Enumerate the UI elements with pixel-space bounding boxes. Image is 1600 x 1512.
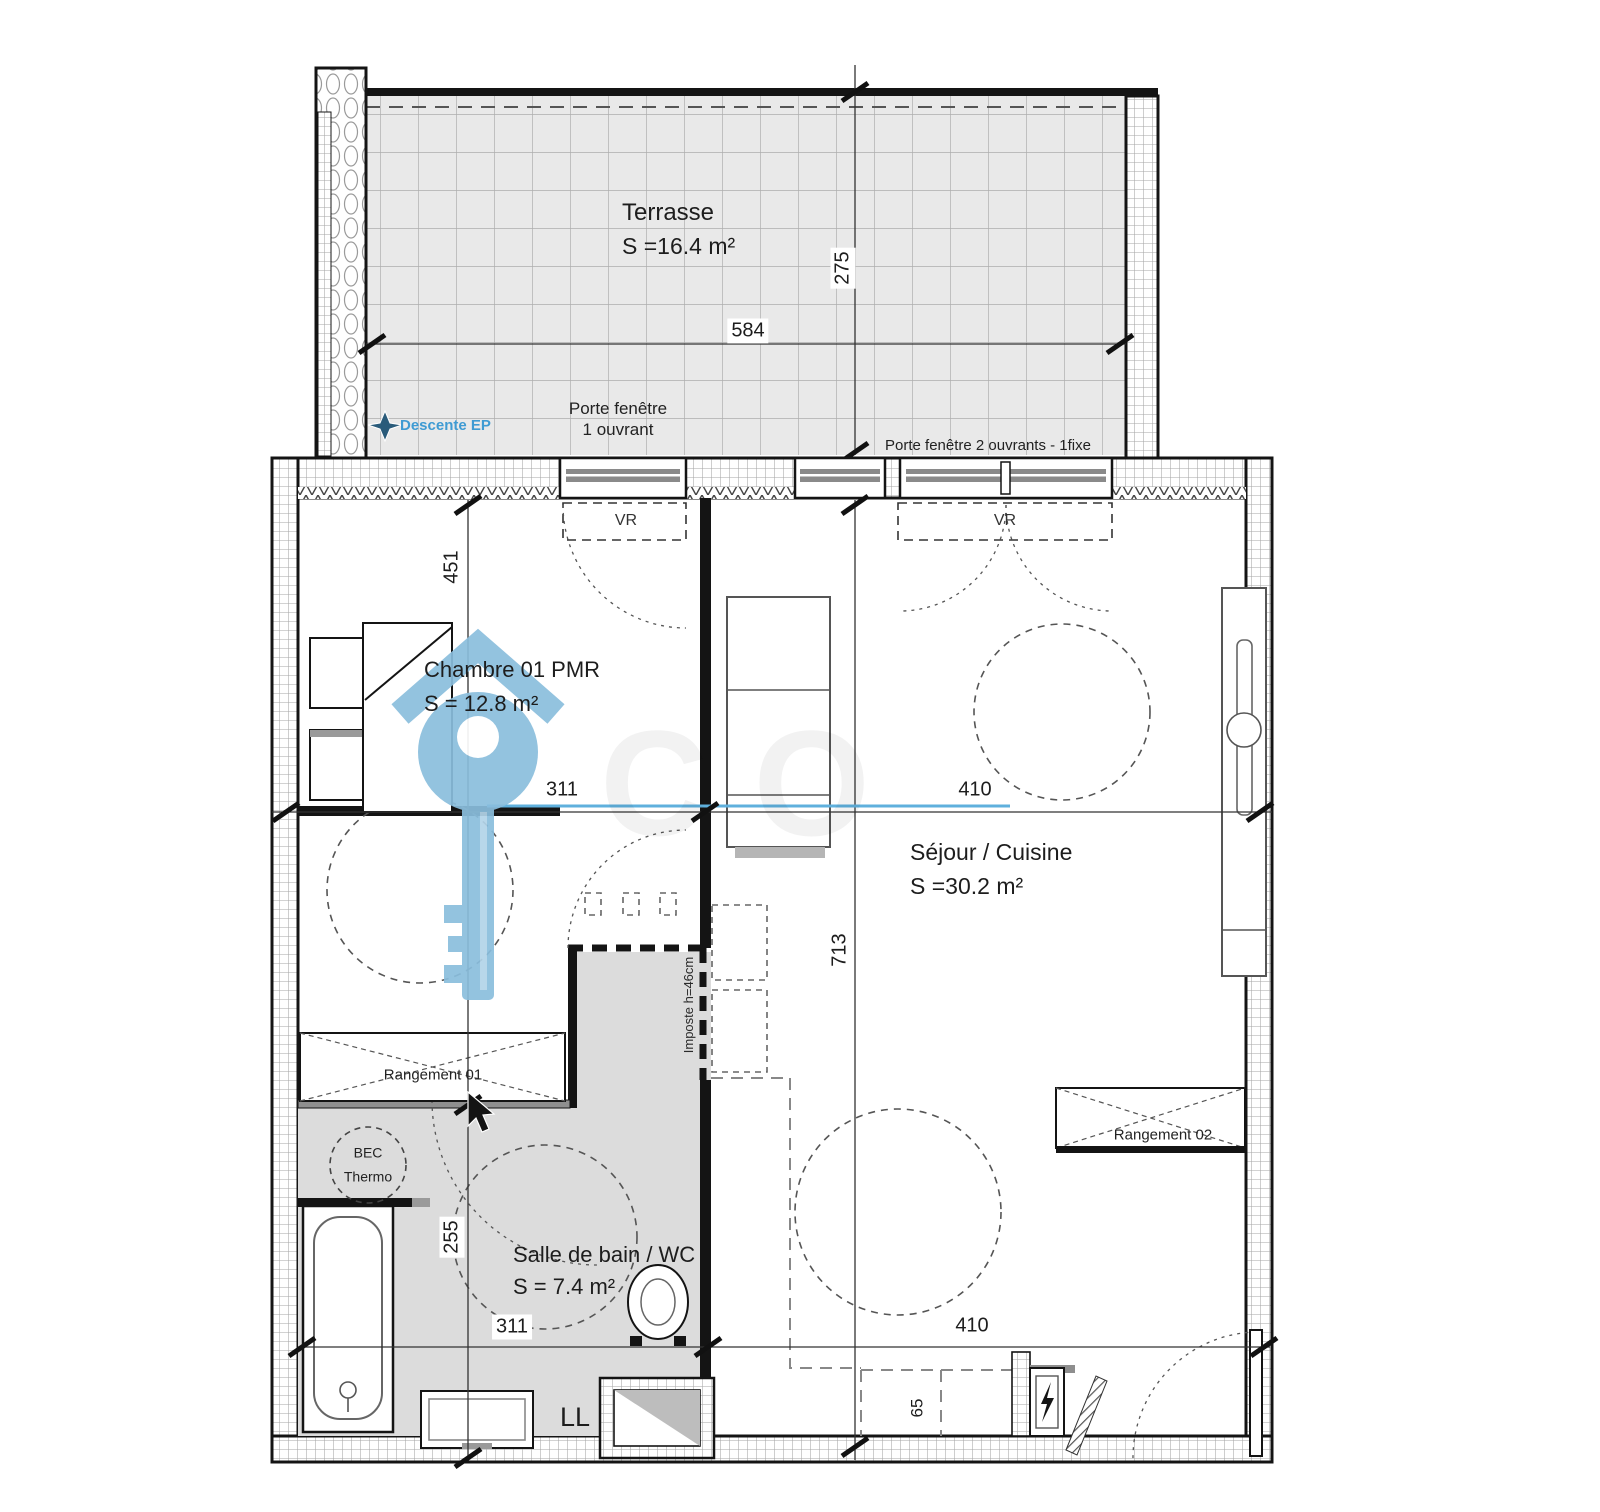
bathtub — [303, 1206, 393, 1432]
porte-fenetre-1-line1: Porte fenêtre — [569, 398, 667, 419]
rangement01-label: Rangement 01 — [384, 1067, 482, 1086]
bathroom-name: Salle de bain / WC — [513, 1241, 695, 1269]
porte-fenetre-2: Porte fenêtre 2 ouvrants - 1fixe — [885, 437, 1091, 456]
terrace-right-wall — [1126, 96, 1158, 458]
window-bedroom — [560, 458, 686, 498]
dim-255: 255 — [440, 1216, 465, 1257]
roller-shutter-boxes — [563, 503, 1112, 540]
bathroom-east-wall — [700, 1080, 711, 1355]
watermark-ghost: CO — [600, 690, 915, 878]
window-living — [900, 458, 1112, 498]
bathroom-step-wall — [568, 948, 577, 1108]
washing-machine-label: LL — [560, 1401, 590, 1435]
living-window-swing-left — [900, 505, 1006, 611]
bec-label-1: BEC — [354, 1144, 383, 1162]
terrace-top-wall — [366, 88, 1158, 96]
dim-311-top: 311 — [542, 778, 582, 803]
key-shaft — [462, 805, 494, 1000]
terrace — [316, 65, 1158, 461]
dim-311-bottom: 311 — [492, 1315, 532, 1340]
window-terrace-door — [795, 458, 885, 498]
bathroom-area: S = 7.4 m² — [513, 1273, 615, 1301]
vr-label-right: VR — [994, 511, 1016, 531]
insulation-strip-3 — [1112, 487, 1246, 499]
bec-label-2: Thermo — [344, 1168, 392, 1186]
descente-ep-label: Descente EP — [400, 417, 491, 436]
dim-713: 713 — [828, 929, 853, 970]
floor-plan-page: CO Terrasse S =16.4 m² Chambre 01 PMR S … — [0, 0, 1600, 1512]
kitchen-counter — [1222, 588, 1266, 976]
vanity-sink — [421, 1391, 533, 1449]
terrace-left-wall — [316, 68, 366, 458]
dim-410-bottom: 410 — [951, 1314, 992, 1339]
vr-label-left: VR — [615, 511, 637, 531]
insulation-strip-2 — [686, 487, 795, 499]
kitchen-layout-dashed — [711, 1078, 1025, 1436]
terrace-name: Terrasse — [622, 198, 714, 228]
bath-partition-gap — [412, 1198, 430, 1207]
insulation-strip-1 — [298, 487, 560, 499]
dim-584: 584 — [727, 319, 768, 344]
porte-fenetre-1: Porte fenêtre 1 ouvrant — [569, 398, 667, 441]
bedroom-name: Chambre 01 PMR — [424, 656, 600, 684]
dim-410-top: 410 — [954, 778, 995, 803]
left-wall — [272, 458, 298, 1462]
imposte-label: Imposte h=46cm — [681, 957, 697, 1053]
living-window-swing-right — [1006, 505, 1112, 611]
dim-275: 275 — [831, 247, 856, 288]
bedroom-area: S = 12.8 m² — [424, 690, 538, 718]
washing-machine-niche — [600, 1378, 714, 1458]
porte-fenetre-1-line2: 1 ouvrant — [569, 419, 667, 440]
living-name: Séjour / Cuisine — [910, 838, 1072, 867]
dim-451: 451 — [440, 546, 465, 587]
terrace-area: S =16.4 m² — [622, 232, 735, 261]
rangement02-label: Rangement 02 — [1114, 1127, 1212, 1146]
living-area: S =30.2 m² — [910, 872, 1023, 901]
key-hole — [457, 716, 499, 758]
terrace-floor-tiles — [366, 96, 1126, 455]
dim-65: 65 — [906, 1395, 927, 1422]
